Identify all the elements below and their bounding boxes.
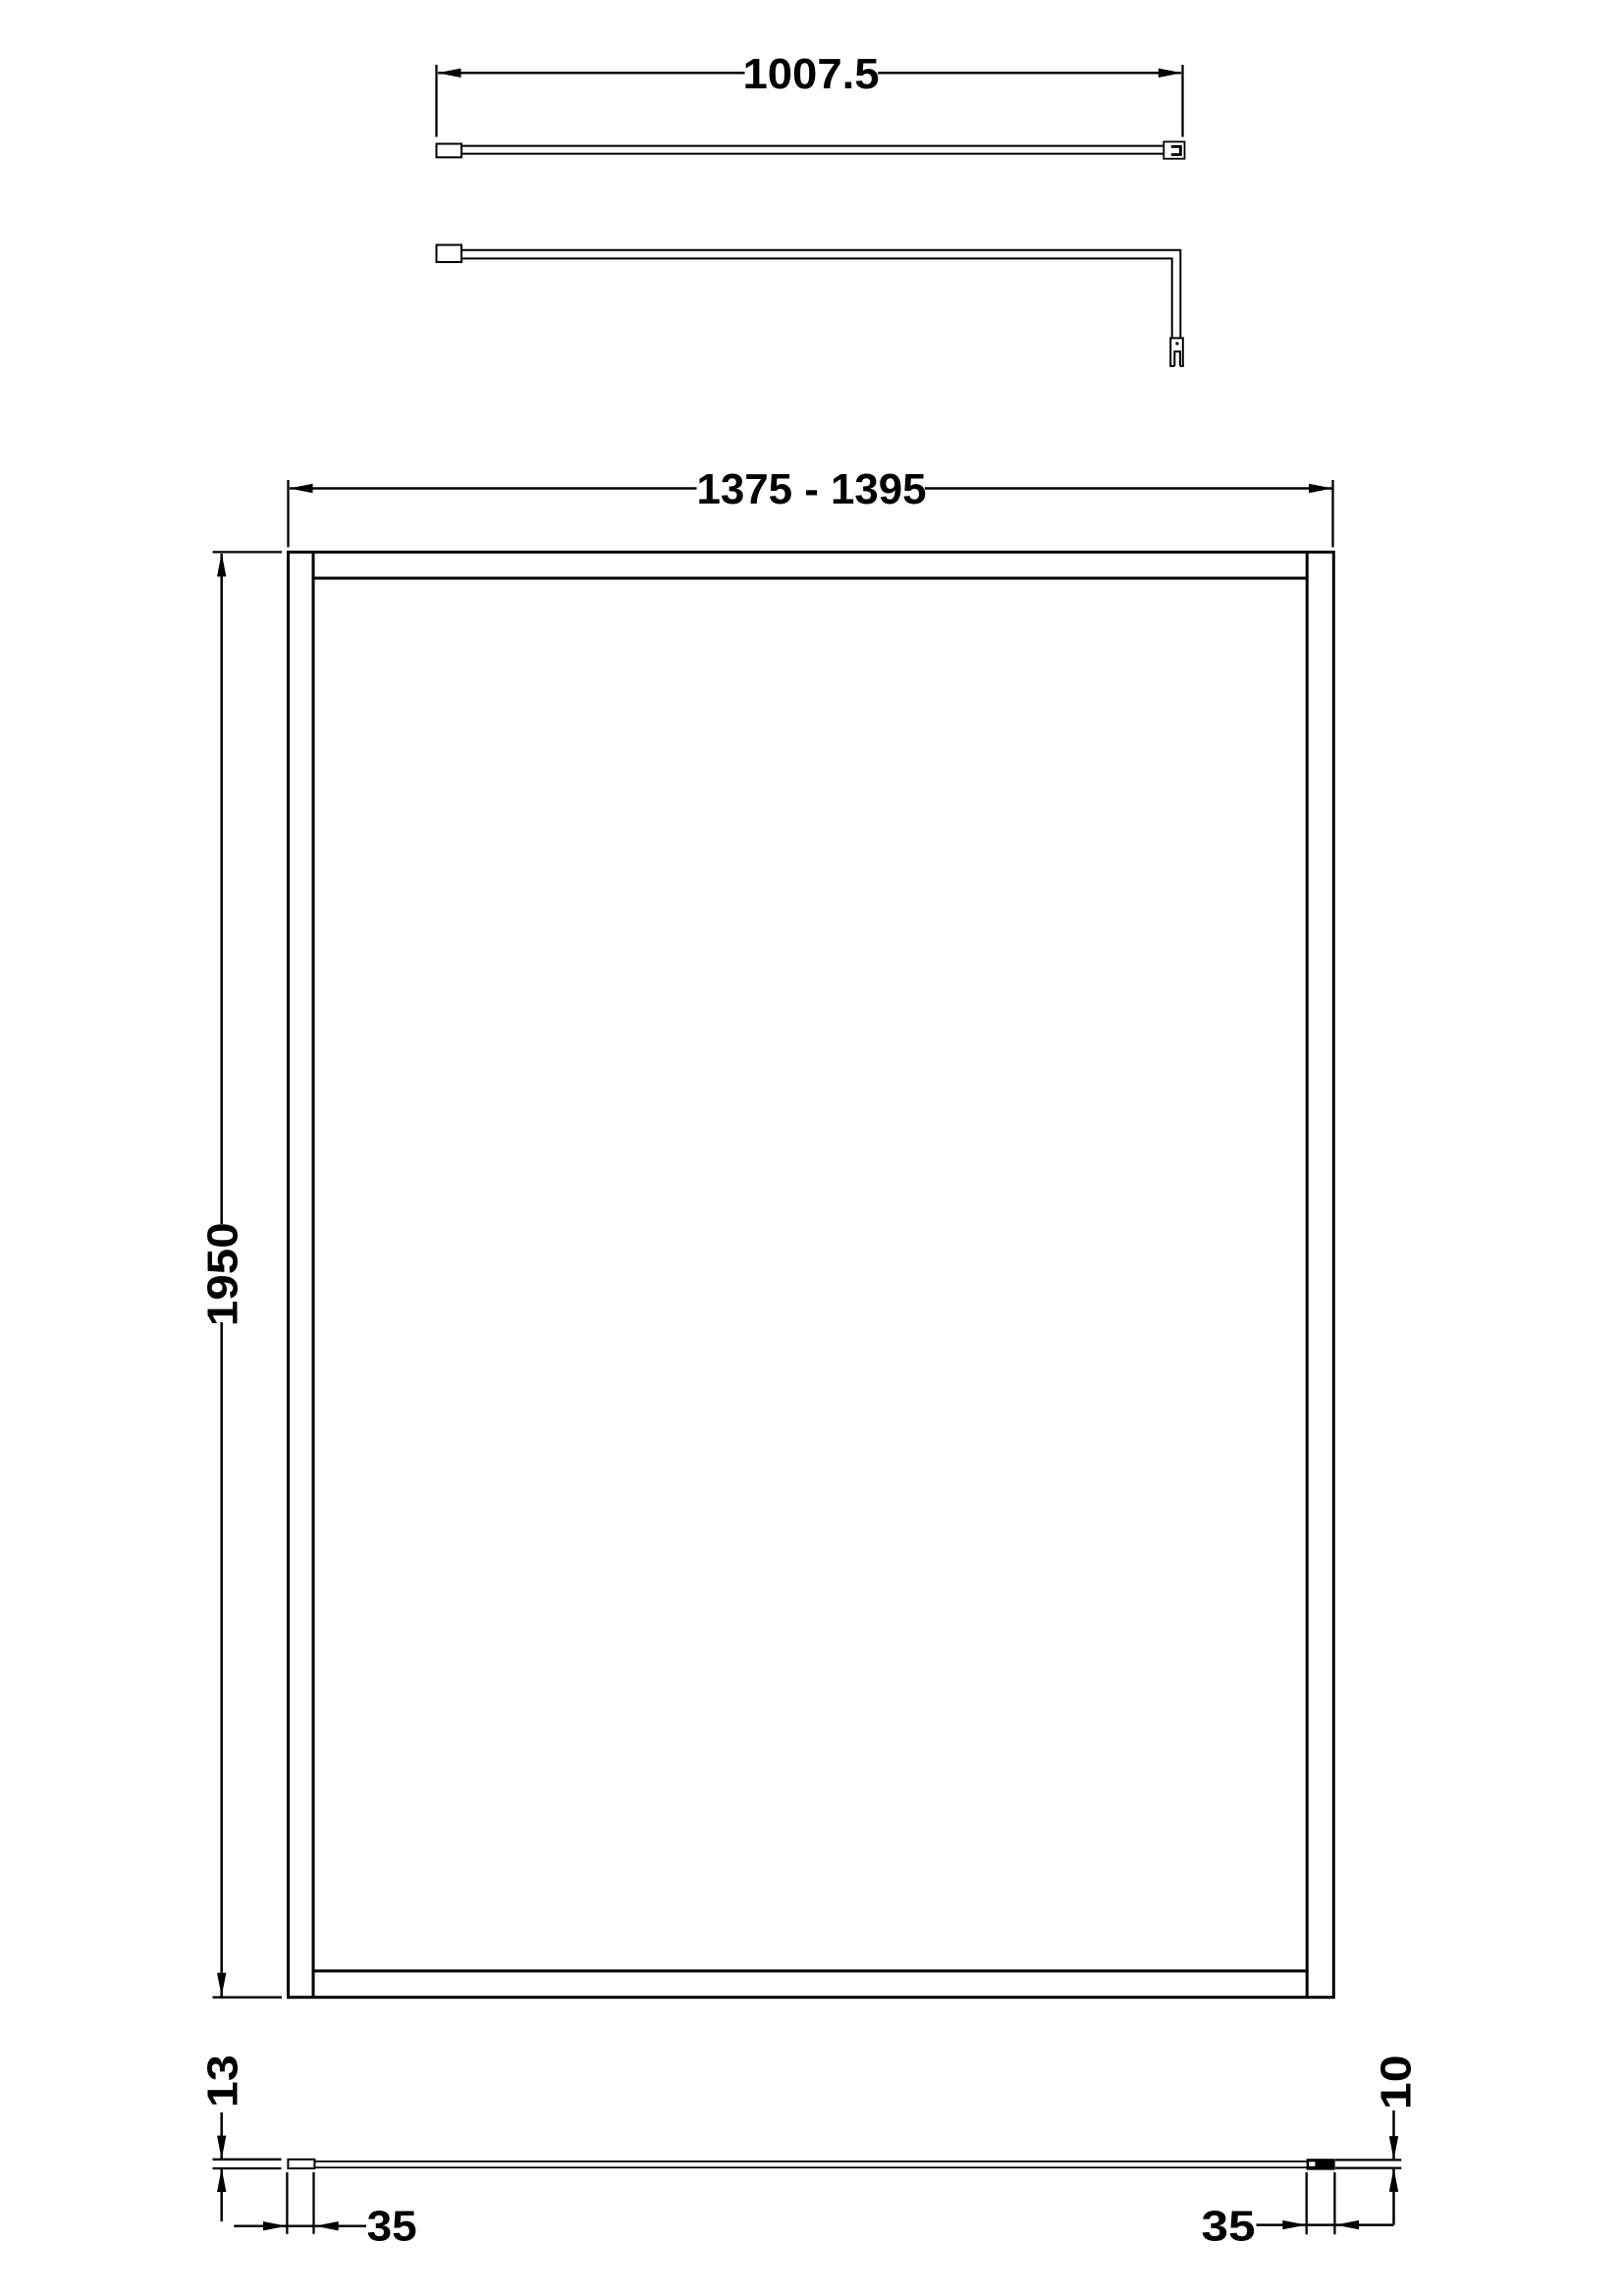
svg-text:13: 13: [198, 2055, 246, 2108]
svg-text:1007.5: 1007.5: [743, 50, 880, 98]
svg-text:35: 35: [367, 2203, 417, 2251]
svg-text:1950: 1950: [199, 1222, 247, 1326]
svg-text:35: 35: [1202, 2202, 1256, 2250]
svg-text:10: 10: [1372, 2055, 1420, 2109]
svg-text:1375 - 1395: 1375 - 1395: [697, 465, 927, 513]
